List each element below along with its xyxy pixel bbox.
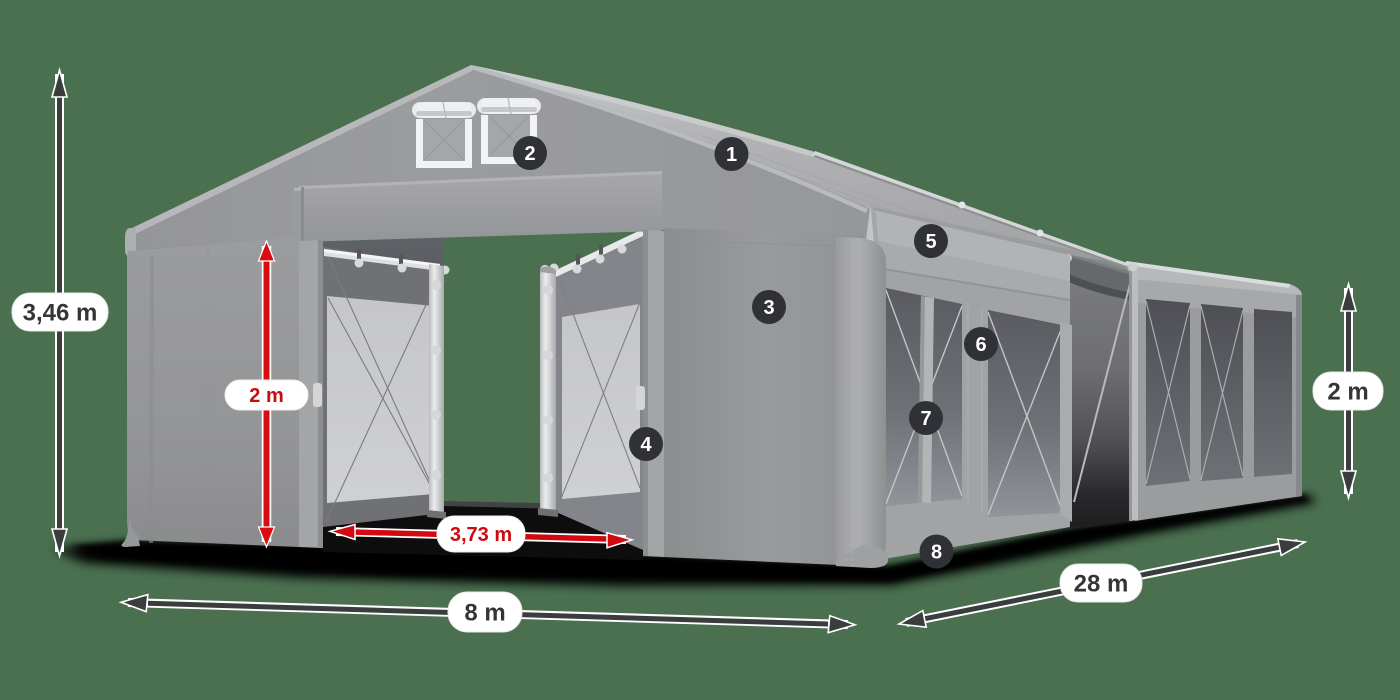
svg-text:28 m: 28 m (1074, 571, 1129, 598)
svg-text:3,46 m: 3,46 m (23, 300, 98, 327)
svg-text:1: 1 (726, 144, 737, 166)
svg-text:8: 8 (931, 542, 942, 564)
svg-text:8 m: 8 m (464, 600, 505, 627)
svg-text:3: 3 (763, 297, 774, 319)
svg-text:5: 5 (925, 231, 936, 253)
svg-text:2: 2 (524, 143, 535, 165)
svg-text:4: 4 (640, 434, 652, 456)
svg-text:2 m: 2 m (1327, 379, 1368, 406)
svg-text:6: 6 (975, 334, 986, 356)
svg-text:2 m: 2 m (249, 385, 283, 407)
svg-text:7: 7 (920, 408, 931, 430)
svg-text:3,73 m: 3,73 m (450, 524, 512, 546)
